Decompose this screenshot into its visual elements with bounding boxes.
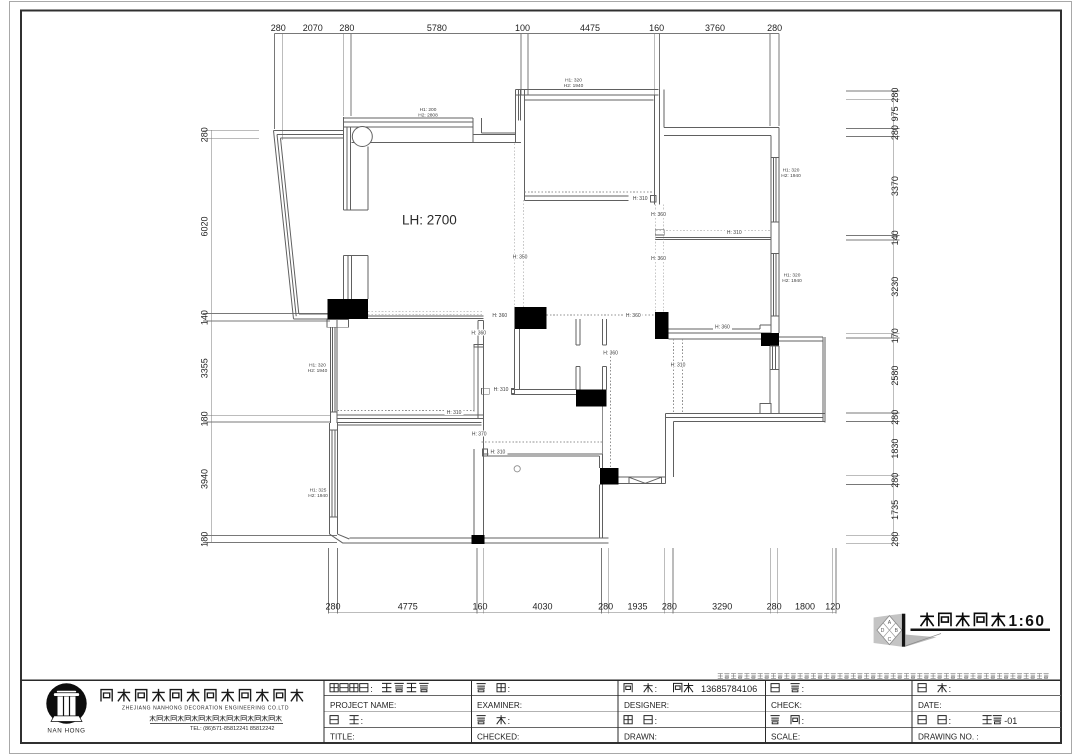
svg-text:D: D xyxy=(881,628,885,634)
svg-text:DRAWING NO. :: DRAWING NO. : xyxy=(918,733,979,742)
svg-text:1830: 1830 xyxy=(890,439,900,459)
svg-text:H1: 320: H1: 320 xyxy=(783,167,800,173)
svg-text:280: 280 xyxy=(325,601,340,611)
svg-text:H: 360: H: 360 xyxy=(626,313,641,319)
svg-text:H2: 1940: H2: 1940 xyxy=(564,83,584,89)
svg-text::: : xyxy=(370,684,373,695)
svg-text:TITLE:: TITLE: xyxy=(330,733,355,742)
svg-text:NAN HONG: NAN HONG xyxy=(47,728,85,735)
svg-text::: : xyxy=(949,684,952,695)
svg-text:CHECKED:: CHECKED: xyxy=(477,733,519,742)
svg-text:H1: 320: H1: 320 xyxy=(565,78,582,84)
svg-text:H2: 2808: H2: 2808 xyxy=(418,113,438,119)
svg-text:120: 120 xyxy=(825,601,840,611)
svg-text:280: 280 xyxy=(890,532,900,547)
svg-text:1:60: 1:60 xyxy=(1009,613,1046,630)
svg-text:H: 310: H: 310 xyxy=(447,410,462,416)
svg-text:H: 350: H: 350 xyxy=(513,254,528,260)
svg-text:280: 280 xyxy=(890,473,900,488)
svg-text:H: 360: H: 360 xyxy=(492,313,507,319)
svg-text:975: 975 xyxy=(890,106,900,121)
svg-text:H2: 1940: H2: 1940 xyxy=(782,278,802,284)
svg-text:H1: 320: H1: 320 xyxy=(309,362,326,368)
svg-text::: : xyxy=(949,716,952,727)
svg-text:H: 360: H: 360 xyxy=(603,351,618,357)
svg-text:H2: 1940: H2: 1940 xyxy=(308,493,328,499)
svg-text:TEL: (86)571-85812241 8581: TEL: (86)571-85812241 85812242 xyxy=(190,726,274,732)
svg-text:H1: 200: H1: 200 xyxy=(420,107,437,113)
svg-text:DESIGNER:: DESIGNER: xyxy=(624,701,669,710)
svg-text:1735: 1735 xyxy=(890,500,900,520)
svg-text:1935: 1935 xyxy=(627,601,647,611)
svg-text:170: 170 xyxy=(890,328,900,343)
svg-text:3290: 3290 xyxy=(712,601,732,611)
svg-text:3230: 3230 xyxy=(890,277,900,297)
svg-text:H: 360: H: 360 xyxy=(715,325,730,331)
svg-text:H2: 1940: H2: 1940 xyxy=(308,368,328,374)
svg-text:CHECK:: CHECK: xyxy=(771,701,802,710)
svg-text:PROJECT NAME:: PROJECT NAME: xyxy=(330,701,396,710)
svg-text:6020: 6020 xyxy=(200,216,210,236)
svg-text:280: 280 xyxy=(890,88,900,103)
svg-text::: : xyxy=(655,684,658,695)
svg-text:EXAMINER:: EXAMINER: xyxy=(477,701,522,710)
svg-text::: : xyxy=(802,716,805,727)
svg-text:SCALE:: SCALE: xyxy=(771,733,800,742)
svg-text:160: 160 xyxy=(649,23,664,33)
svg-text:100: 100 xyxy=(515,23,530,33)
svg-text::: : xyxy=(361,716,364,727)
svg-text:280: 280 xyxy=(890,410,900,425)
svg-text::: : xyxy=(508,684,511,695)
svg-text:-01: -01 xyxy=(1004,716,1017,726)
svg-text:3940: 3940 xyxy=(200,469,210,489)
svg-text:280: 280 xyxy=(767,601,782,611)
svg-text:H: 360: H: 360 xyxy=(471,330,486,336)
svg-text:280: 280 xyxy=(598,601,613,611)
svg-text:4475: 4475 xyxy=(580,23,600,33)
svg-text:H1: 325: H1: 325 xyxy=(310,487,327,493)
svg-text:1800: 1800 xyxy=(795,601,815,611)
svg-text:H1: 320: H1: 320 xyxy=(784,272,801,278)
svg-text:H: 360: H: 360 xyxy=(651,256,666,262)
svg-text:DATE:: DATE: xyxy=(918,701,942,710)
svg-text:H: 310: H: 310 xyxy=(494,387,509,393)
svg-text::: : xyxy=(655,716,658,727)
svg-text:280: 280 xyxy=(890,125,900,140)
svg-text:2580: 2580 xyxy=(890,366,900,386)
svg-text:ZHEJIANG NANHONG DECORATION EN: ZHEJIANG NANHONG DECORATION ENGINEERING … xyxy=(122,706,289,712)
svg-text:180: 180 xyxy=(200,532,210,547)
svg-text:2070: 2070 xyxy=(303,23,323,33)
svg-text:280: 280 xyxy=(662,601,677,611)
svg-text:H: 310: H: 310 xyxy=(633,196,648,202)
svg-text:H: 310: H: 310 xyxy=(491,449,506,455)
svg-text:280: 280 xyxy=(271,23,286,33)
svg-text:DRAWN:: DRAWN: xyxy=(624,733,657,742)
svg-text:280: 280 xyxy=(339,23,354,33)
svg-text:3760: 3760 xyxy=(705,23,725,33)
svg-text:H: 310: H: 310 xyxy=(727,230,742,236)
svg-text:160: 160 xyxy=(472,601,487,611)
svg-text::: : xyxy=(802,684,805,695)
svg-text:180: 180 xyxy=(200,411,210,426)
svg-text:13685784106: 13685784106 xyxy=(701,684,757,694)
svg-text:280: 280 xyxy=(767,23,782,33)
svg-text:H: 310: H: 310 xyxy=(671,363,686,369)
svg-text:280: 280 xyxy=(200,127,210,142)
svg-text:3355: 3355 xyxy=(200,358,210,378)
svg-text:LH: 2700: LH: 2700 xyxy=(402,213,457,228)
svg-text:H2: 1940: H2: 1940 xyxy=(781,173,801,179)
svg-text:140: 140 xyxy=(200,310,210,325)
svg-text:5780: 5780 xyxy=(427,23,447,33)
svg-text:H: 360: H: 360 xyxy=(651,212,666,218)
svg-text:4775: 4775 xyxy=(398,601,418,611)
svg-text:H: 370: H: 370 xyxy=(472,432,487,438)
svg-text:4030: 4030 xyxy=(532,601,552,611)
svg-text:140: 140 xyxy=(890,230,900,245)
svg-text:3370: 3370 xyxy=(890,176,900,196)
svg-text::: : xyxy=(508,716,511,727)
svg-text:C: C xyxy=(888,637,892,643)
